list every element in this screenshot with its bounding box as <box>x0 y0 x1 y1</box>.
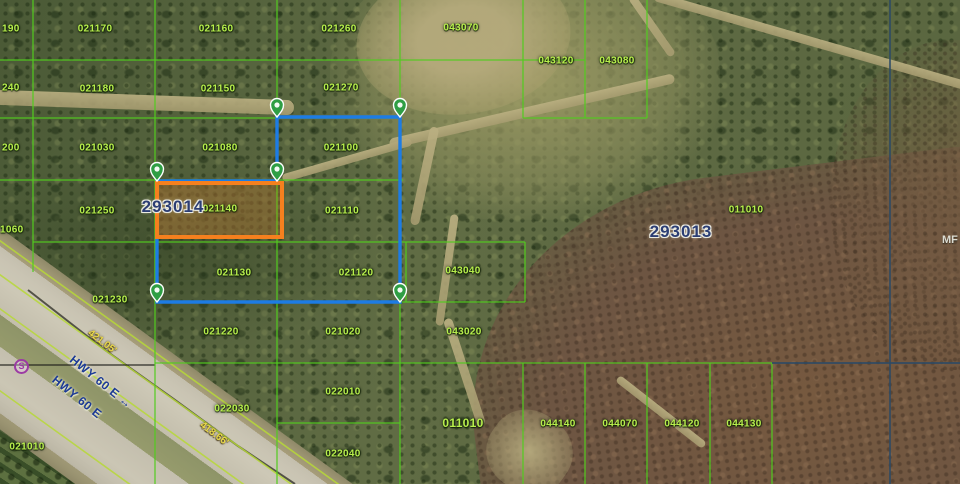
label-layer: 0211700211600212600430700431200430800211… <box>0 0 960 484</box>
parcel-label: 043070 <box>443 23 478 34</box>
parcel-label: 022030 <box>214 404 249 415</box>
parcel-label-partial: 200 <box>2 143 20 154</box>
parcel-label: 043040 <box>445 266 480 277</box>
dimension-label: 418.66' <box>198 420 231 449</box>
parcel-label: 021270 <box>323 83 358 94</box>
parcel-label: 044120 <box>664 419 699 430</box>
parcel-label: 021230 <box>92 295 127 306</box>
parcel-label: 043080 <box>599 56 634 67</box>
parcel-label: 044130 <box>726 419 761 430</box>
parcel-label: 044070 <box>602 419 637 430</box>
parcel-label: 043120 <box>538 56 573 67</box>
parcel-label: 021080 <box>202 143 237 154</box>
section-label: 293014 <box>142 197 205 217</box>
parcel-label: 022010 <box>325 387 360 398</box>
parcel-label: 021130 <box>217 268 252 279</box>
parcel-label: 021110 <box>325 206 359 217</box>
parcel-label: 021150 <box>201 84 236 95</box>
map-canvas[interactable]: 0211700211600212600430700431200430800211… <box>0 0 960 484</box>
parcel-label: 021140 <box>203 204 238 215</box>
parcel-label: 021220 <box>203 327 238 338</box>
parcel-label: 011010 <box>442 416 483 430</box>
parcel-label: 021250 <box>79 206 114 217</box>
parcel-label: 043020 <box>446 327 481 338</box>
parcel-label: 021020 <box>325 327 360 338</box>
parcel-label-partial: 240 <box>2 83 20 94</box>
parcel-label: 021180 <box>80 84 115 95</box>
parcel-label: 021100 <box>324 143 359 154</box>
parcel-label: 011010 <box>729 205 764 216</box>
parcel-label: 021120 <box>339 268 374 279</box>
imagery-credit-label: MF <box>942 234 958 246</box>
parcel-label: 044140 <box>540 419 575 430</box>
parcel-label: 021010 <box>9 442 44 453</box>
parcel-label-partial: 190 <box>2 24 20 35</box>
section-label: 293013 <box>650 222 713 242</box>
parcel-label: 021260 <box>321 24 356 35</box>
parcel-label: 021160 <box>199 24 234 35</box>
parcel-label: 021030 <box>79 143 114 154</box>
parcel-label: 021170 <box>78 24 113 35</box>
parcel-label-partial: 1060 <box>0 225 23 236</box>
survey-marker-icon: S <box>14 359 29 374</box>
dimension-label: 421.05' <box>86 328 119 357</box>
parcel-label: 022040 <box>325 449 360 460</box>
